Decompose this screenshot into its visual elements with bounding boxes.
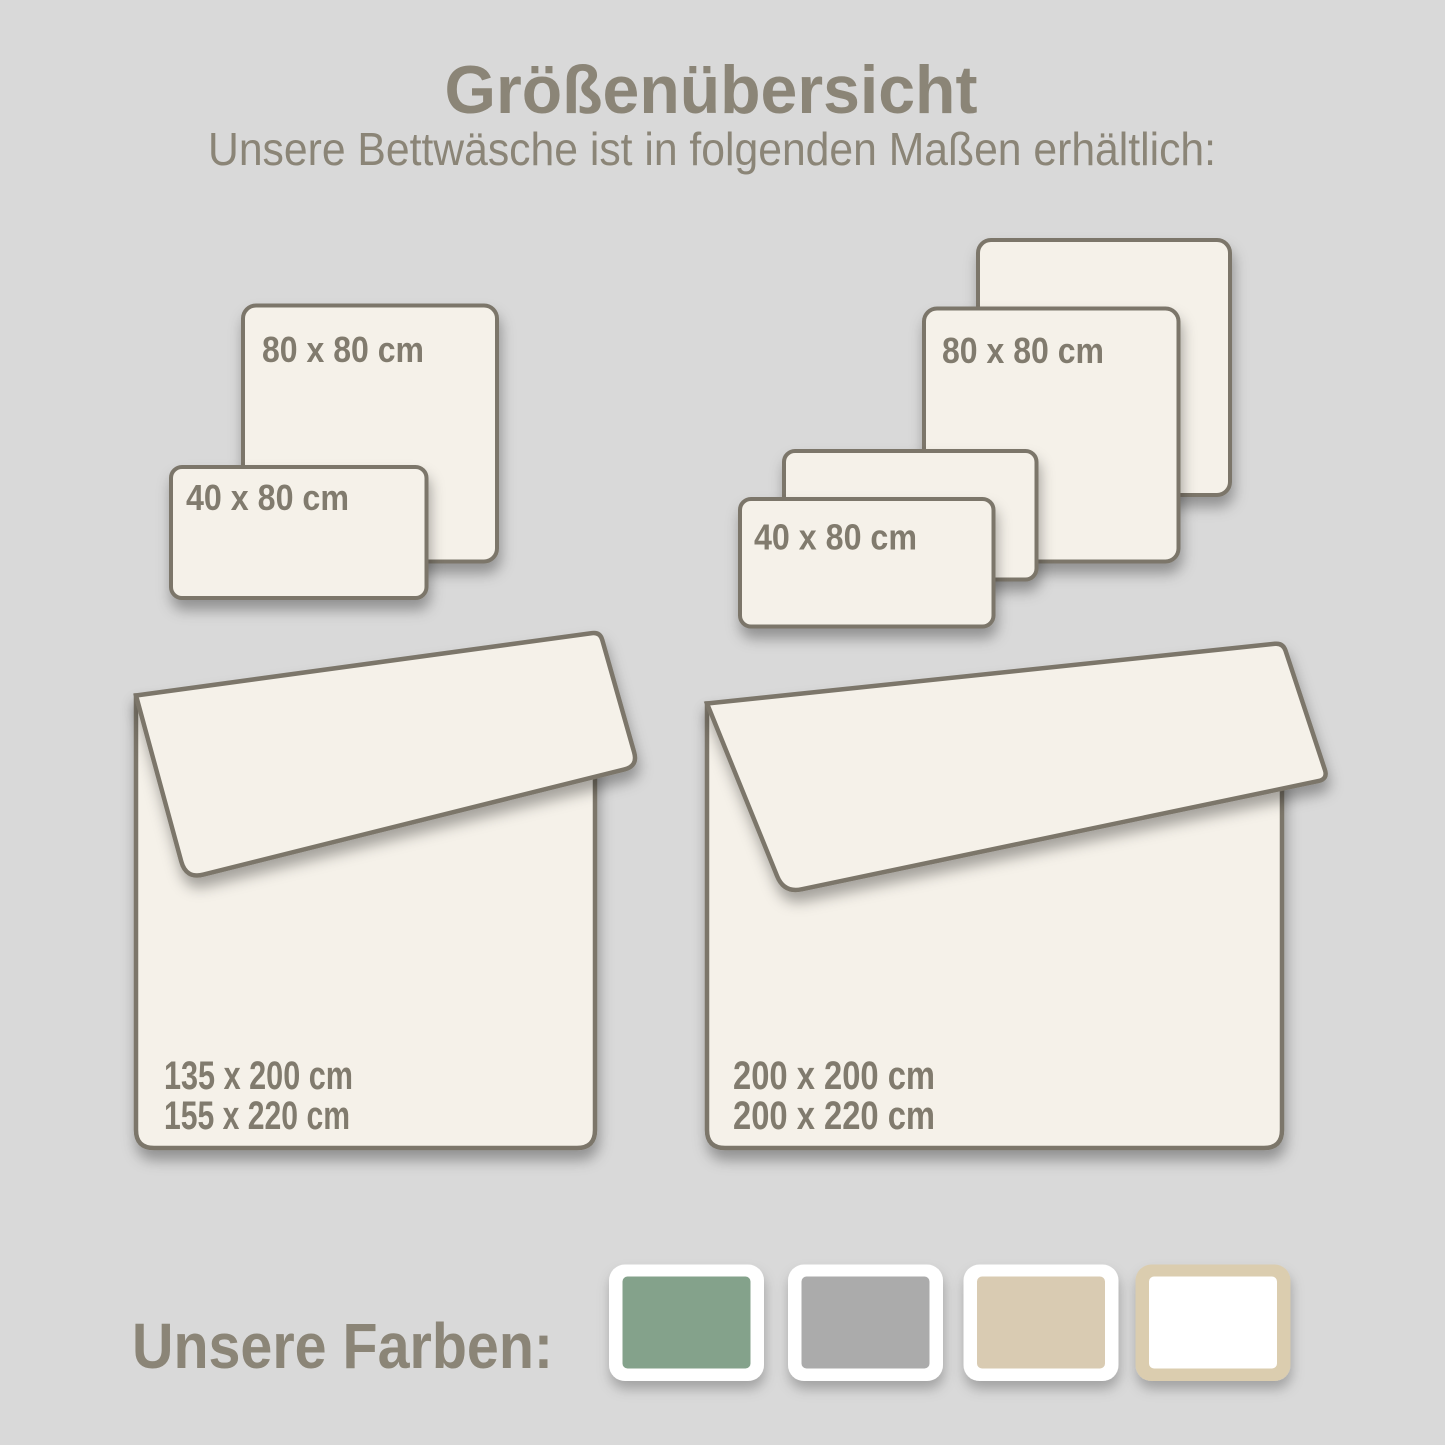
svg-text:Unsere Farben:: Unsere Farben: [132, 1310, 553, 1382]
svg-text:40 x 80 cm: 40 x 80 cm [186, 477, 349, 518]
svg-text:200 x 220 cm: 200 x 220 cm [733, 1094, 935, 1138]
svg-text:40 x 80 cm: 40 x 80 cm [754, 517, 917, 558]
svg-text:Größenübersicht: Größenübersicht [445, 52, 978, 128]
svg-text:80 x 80 cm: 80 x 80 cm [262, 329, 424, 370]
svg-text:Unsere Bettwäsche ist in folge: Unsere Bettwäsche ist in folgenden Maßen… [208, 123, 1216, 175]
svg-text:135 x 200 cm: 135 x 200 cm [164, 1054, 353, 1098]
svg-text:155 x 220 cm: 155 x 220 cm [164, 1094, 350, 1138]
svg-text:80 x 80 cm: 80 x 80 cm [942, 330, 1104, 371]
svg-text:200 x 200 cm: 200 x 200 cm [733, 1054, 935, 1098]
